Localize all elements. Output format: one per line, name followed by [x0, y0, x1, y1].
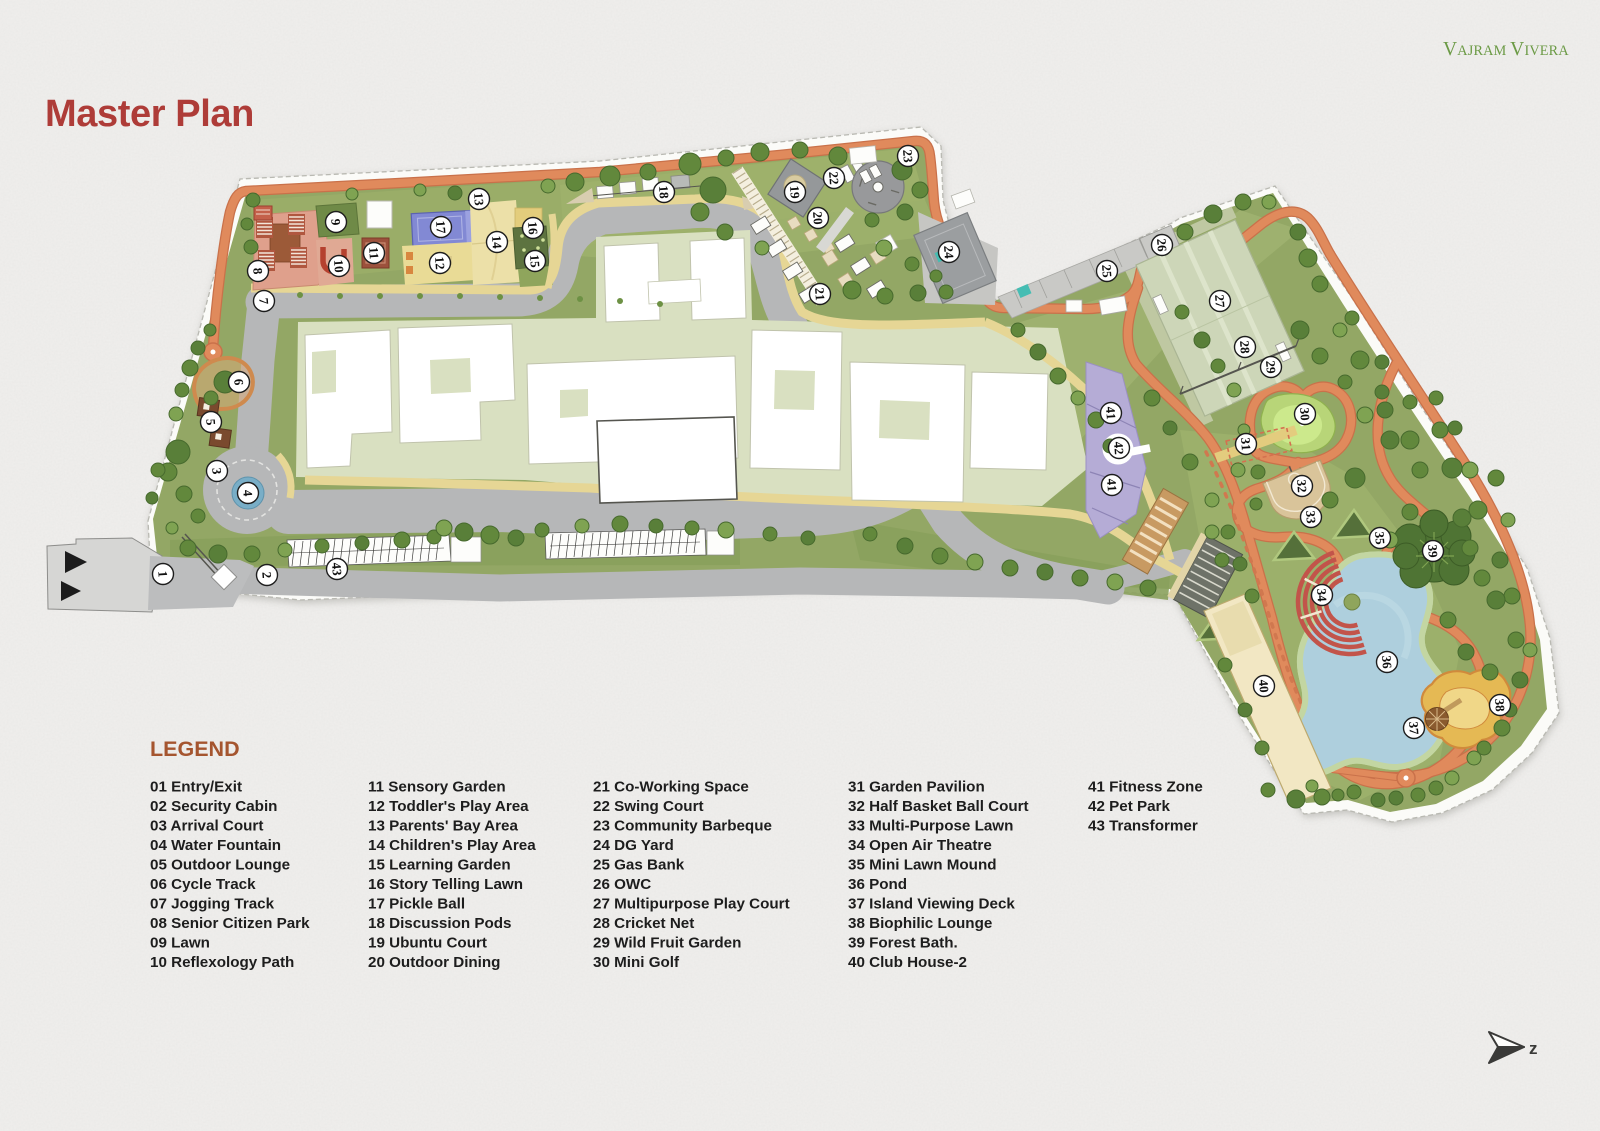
svg-text:42: 42 [1111, 441, 1127, 455]
svg-text:17 Pickle Ball: 17 Pickle Ball [368, 896, 465, 913]
svg-text:06 Cycle Track: 06 Cycle Track [150, 876, 256, 893]
svg-text:LEGEND: LEGEND [150, 737, 240, 761]
svg-text:13 Parents' Bay Area: 13 Parents' Bay Area [368, 818, 518, 835]
svg-text:16 Story Telling Lawn: 16 Story Telling Lawn [368, 876, 523, 893]
svg-text:28 Cricket Net: 28 Cricket Net [593, 915, 694, 932]
svg-text:25: 25 [1099, 264, 1115, 279]
svg-text:07 Jogging Track: 07 Jogging Track [150, 896, 275, 913]
svg-text:14 Children's Play Area: 14 Children's Play Area [368, 837, 536, 854]
svg-text:37 Island Viewing Deck: 37 Island Viewing Deck [848, 896, 1015, 913]
svg-text:32 Half Basket Ball Court: 32 Half Basket Ball Court [848, 798, 1029, 815]
svg-text:12 Toddler's Play Area: 12 Toddler's Play Area [368, 798, 529, 815]
svg-text:27 Multipurpose Play Court: 27 Multipurpose Play Court [593, 896, 790, 913]
svg-text:24: 24 [941, 245, 957, 260]
svg-text:39: 39 [1425, 544, 1441, 559]
svg-text:20: 20 [810, 211, 826, 225]
svg-text:35 Mini Lawn Mound: 35 Mini Lawn Mound [848, 857, 997, 874]
svg-text:18 Discussion Pods: 18 Discussion Pods [368, 915, 512, 932]
svg-text:31: 31 [1238, 437, 1254, 451]
svg-text:31 Garden Pavilion: 31 Garden Pavilion [848, 779, 985, 796]
svg-text:12: 12 [432, 256, 448, 270]
svg-text:25 Gas Bank: 25 Gas Bank [593, 857, 685, 874]
svg-text:34 Open Air Theatre: 34 Open Air Theatre [848, 837, 992, 854]
svg-text:01 Entry/Exit: 01 Entry/Exit [150, 779, 242, 796]
svg-text:15: 15 [527, 254, 543, 269]
svg-text:30 Mini Golf: 30 Mini Golf [593, 954, 680, 971]
svg-text:1: 1 [155, 570, 170, 578]
svg-text:39 Forest Bath.: 39 Forest Bath. [848, 935, 958, 952]
svg-text:18: 18 [656, 185, 672, 200]
svg-text:13: 13 [471, 192, 487, 207]
svg-text:15 Learning Garden: 15 Learning Garden [368, 857, 511, 874]
svg-text:03 Arrival Court: 03 Arrival Court [150, 818, 263, 835]
svg-text:09 Lawn: 09 Lawn [150, 935, 210, 952]
svg-text:20 Outdoor Dining: 20 Outdoor Dining [368, 954, 500, 971]
svg-text:23: 23 [900, 149, 916, 164]
svg-text:30: 30 [1297, 407, 1313, 421]
svg-text:21: 21 [812, 287, 828, 301]
svg-text:35: 35 [1372, 531, 1388, 546]
svg-text:38 Biophilic Lounge: 38 Biophilic Lounge [848, 915, 992, 932]
svg-text:22: 22 [826, 171, 842, 185]
svg-text:36 Pond: 36 Pond [848, 876, 907, 893]
svg-text:40 Club House-2: 40 Club House-2 [848, 954, 967, 971]
svg-text:VAJRAM VIVERA: VAJRAM VIVERA [1443, 39, 1569, 60]
svg-text:2: 2 [259, 571, 274, 579]
svg-text:29 Wild Fruit Garden: 29 Wild Fruit Garden [593, 935, 741, 952]
svg-text:40: 40 [1256, 679, 1272, 693]
svg-text:43 Transformer: 43 Transformer [1088, 818, 1198, 835]
svg-text:27: 27 [1212, 294, 1228, 309]
svg-text:23 Community Barbeque: 23 Community Barbeque [593, 818, 772, 835]
svg-text:29: 29 [1263, 360, 1279, 375]
svg-text:41: 41 [1103, 406, 1119, 420]
svg-text:32: 32 [1294, 479, 1310, 493]
svg-text:42 Pet Park: 42 Pet Park [1088, 798, 1170, 815]
svg-text:43: 43 [329, 562, 345, 577]
svg-text:02 Security Cabin: 02 Security Cabin [150, 798, 277, 815]
svg-text:16: 16 [525, 221, 541, 236]
svg-text:33: 33 [1303, 510, 1319, 525]
svg-text:10: 10 [331, 259, 347, 273]
svg-text:08 Senior Citizen Park: 08 Senior Citizen Park [150, 915, 310, 932]
svg-text:33 Multi-Purpose Lawn: 33 Multi-Purpose Lawn [848, 818, 1013, 835]
svg-text:19 Ubuntu Court: 19 Ubuntu Court [368, 935, 487, 952]
svg-text:24 DG Yard: 24 DG Yard [593, 837, 674, 854]
svg-text:19: 19 [787, 185, 803, 200]
svg-text:Master Plan: Master Plan [45, 93, 254, 135]
svg-text:28: 28 [1237, 340, 1253, 355]
svg-text:14: 14 [489, 235, 505, 250]
svg-text:z: z [1529, 1039, 1538, 1058]
svg-text:04 Water Fountain: 04 Water Fountain [150, 837, 281, 854]
svg-text:36: 36 [1379, 655, 1395, 670]
svg-text:37: 37 [1406, 721, 1422, 736]
svg-text:05 Outdoor Lounge: 05 Outdoor Lounge [150, 857, 290, 874]
svg-text:11 Sensory Garden: 11 Sensory Garden [368, 779, 506, 796]
svg-text:34: 34 [1314, 588, 1330, 603]
svg-text:10 Reflexology Path: 10 Reflexology Path [150, 954, 294, 971]
svg-text:26: 26 [1154, 238, 1170, 253]
svg-text:41 Fitness Zone: 41 Fitness Zone [1088, 779, 1203, 796]
svg-text:11: 11 [366, 246, 382, 259]
svg-text:26 OWC: 26 OWC [593, 876, 651, 893]
svg-text:41: 41 [1104, 478, 1120, 492]
svg-text:22 Swing Court: 22 Swing Court [593, 798, 704, 815]
svg-text:21 Co-Working Space: 21 Co-Working Space [593, 779, 749, 796]
svg-text:38: 38 [1492, 698, 1508, 713]
svg-text:17: 17 [433, 220, 449, 235]
